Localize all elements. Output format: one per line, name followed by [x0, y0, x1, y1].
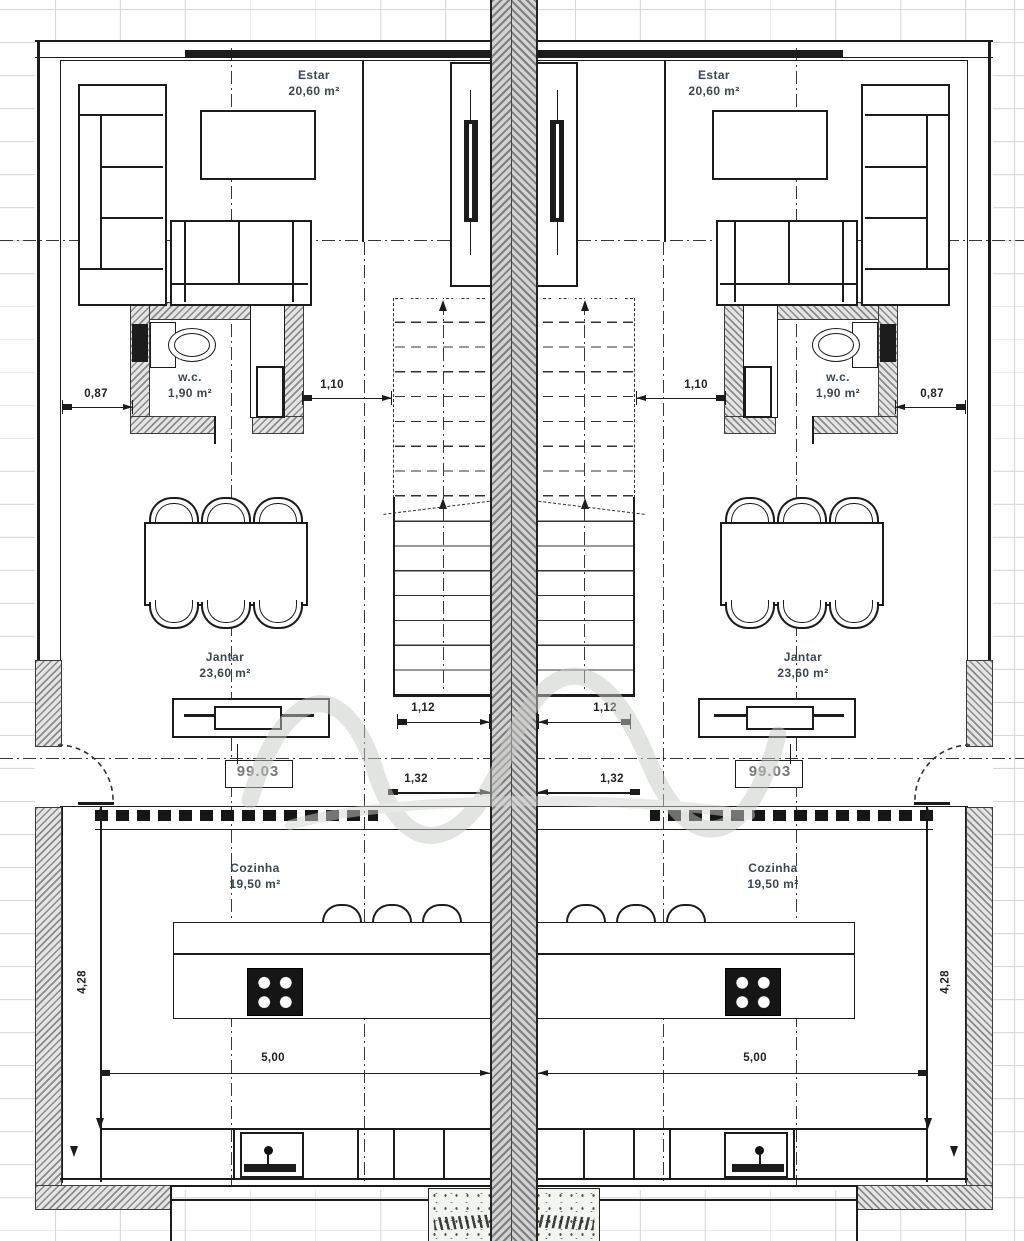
dim-wall-to-wc: 0,87 [896, 388, 968, 400]
faucet-stem [267, 1154, 269, 1165]
sofa-armrest-line [865, 114, 950, 116]
sofa-armrest-line [865, 268, 950, 270]
west-wall-inner-line [62, 807, 63, 1183]
sofa-back-line [927, 116, 929, 268]
dimension-arrow-icon [100, 1070, 110, 1076]
sofa-cushion-line [100, 166, 163, 168]
sofa-armrest-line [843, 220, 845, 302]
party-wall-hatch [511, 0, 538, 1241]
sink-edge [732, 1164, 784, 1172]
door-leaf [78, 802, 114, 805]
dimension-arrow-icon [918, 1070, 928, 1076]
dimension-line [388, 792, 490, 794]
counter-divider [443, 1128, 445, 1180]
dim-wall-to-wc: 0,87 [60, 388, 132, 400]
wc-wall-hatch [130, 416, 216, 434]
cozinha-room-label: Cozinha [195, 861, 315, 877]
dim-hall-width: 1,32 [380, 773, 452, 785]
south-wall-hatch [35, 1185, 172, 1210]
island-divider-line [538, 953, 855, 955]
counter-back-line [538, 1128, 928, 1130]
dimension-arrow-icon [480, 1070, 490, 1076]
stair-treads-lower [538, 497, 633, 695]
wc-area-label: 1,90 m² [798, 386, 878, 402]
dimension-tick [636, 391, 637, 405]
dimension-tick [132, 400, 133, 414]
wc-wall-hatch [812, 416, 898, 434]
sofa-two-seat [170, 220, 312, 306]
dimension-arrow-icon [302, 395, 312, 401]
level-marker-tick [237, 744, 238, 764]
sideboard-tv [746, 706, 814, 730]
kitchen-island [536, 922, 855, 1019]
sofa-armrest-line [78, 268, 163, 270]
dimension-arrow-icon [538, 719, 548, 725]
counter-divider [357, 1128, 359, 1180]
sofa-armrest-line [184, 220, 186, 302]
north-wall-glazing-band [538, 50, 843, 58]
south-wall-hatch [856, 1185, 993, 1210]
stair-up-arrow-icon [439, 300, 447, 311]
sofa-two-seat [716, 220, 858, 306]
sofa-cushion-line [865, 166, 928, 168]
sofa-armrest-line [78, 114, 163, 116]
dimension-tick [62, 400, 63, 414]
panel-handle-slit [556, 124, 559, 218]
sofa-back-line [100, 116, 102, 268]
dimension-tick [538, 714, 539, 729]
wc-basin [744, 366, 772, 418]
louver-screen [650, 810, 933, 821]
sofa-cushion-line [789, 220, 791, 284]
dimension-line [636, 398, 726, 399]
dim-kitchen-depth: 4,28 [77, 955, 89, 1010]
stair-rail-dashed [393, 298, 394, 498]
counter-divider [794, 1128, 796, 1180]
counter-front-line [60, 1178, 490, 1180]
sink-edge [244, 1164, 296, 1172]
paving-edge-line [170, 1185, 172, 1241]
wc-door-leaf [812, 416, 814, 444]
dimension-arrow-icon [388, 789, 398, 795]
dimension-arrow-icon [480, 789, 490, 795]
kitchen-boundary-line2 [95, 829, 490, 830]
dimension-arrow-icon [895, 404, 905, 410]
wc-wall-hatch [252, 416, 304, 434]
door-leaf [914, 802, 950, 805]
dimension-arrow-icon [397, 719, 407, 725]
dim-stair-width: 1,12 [569, 702, 641, 714]
dimension-line [100, 1073, 490, 1074]
wc-wall-hatch [724, 302, 744, 434]
jantar-area-label: 23,60 m² [743, 666, 863, 682]
dimension-line [538, 1073, 928, 1074]
sofa-armrest-line [292, 220, 294, 302]
sofa-armrest-line [735, 220, 737, 302]
dim-wc-to-stair: 1,10 [660, 379, 732, 391]
west-wall-outer-line [37, 40, 40, 745]
door-swing-arc [56, 743, 118, 807]
counter-front-line [538, 1178, 968, 1180]
sofa-cushion-line [100, 217, 163, 219]
wc-shaft [132, 324, 148, 362]
dimension-line [302, 398, 392, 399]
corner-mark-icon [70, 1146, 78, 1157]
sofa-cushion-line [865, 217, 928, 219]
west-wall-outer-line [988, 40, 991, 745]
south-edge-line [170, 1185, 514, 1187]
wc-basin [256, 366, 284, 418]
dimension-tick [725, 391, 726, 405]
dining-table [144, 522, 308, 606]
cozinha-room-label: Cozinha [713, 861, 833, 877]
dimension-tick [397, 714, 398, 729]
faucet-stem [759, 1154, 761, 1165]
louver-screen [95, 810, 378, 821]
north-wall-outer-line [35, 40, 514, 42]
sideboard-tv [214, 706, 282, 730]
estar-area-label: 20,60 m² [250, 84, 378, 100]
dimension-arrow-icon [538, 1070, 548, 1076]
dimension-arrow-icon [62, 404, 72, 410]
kitchen-boundary-line2 [538, 829, 933, 830]
dimension-arrow-icon [636, 395, 646, 401]
coffee-table [200, 110, 316, 180]
cozinha-area-label: 19,50 m² [195, 877, 315, 893]
stair-rail-dashed [634, 298, 635, 498]
stair-up-arrow-icon [581, 300, 589, 311]
door-swing-arc [910, 743, 972, 807]
dimension-line [538, 722, 631, 723]
cooktop [247, 968, 303, 1016]
dim-kitchen-width: 5,00 [237, 1052, 309, 1064]
wc-wall-hatch [130, 302, 150, 434]
estar-area-label: 20,60 m² [650, 84, 778, 100]
sofa-cushion-line [238, 220, 240, 284]
dimension-tick [965, 400, 966, 414]
dimension-arrow-icon [630, 789, 640, 795]
level-marker-value: 99.03 [737, 763, 803, 780]
wall-pier-hatch [35, 660, 62, 747]
dim-hall-width: 1,32 [576, 773, 648, 785]
coffee-table [712, 110, 828, 180]
cozinha-area-label: 19,50 m² [713, 877, 833, 893]
unit-right: Estar 20,60 m² w.c. 1,90 m² 0,87 [514, 0, 1024, 1241]
counter-divider [634, 1128, 636, 1180]
toilet-bowl-inner [818, 333, 854, 357]
dimension-arrow-icon [538, 789, 548, 795]
estar-room-label: Estar [650, 68, 778, 84]
dining-table [720, 522, 884, 606]
kitchen-boundary-line [60, 806, 490, 807]
dimension-tick [302, 391, 303, 405]
wc-door-leaf [214, 416, 216, 444]
toilet-bowl-inner [174, 333, 210, 357]
west-wall-hatch [966, 807, 993, 1187]
jantar-room-label: Jantar [743, 650, 863, 666]
north-wall-glazing-band [185, 50, 490, 58]
floor-plan-canvas: Estar 20,60 m² w.c. 1,90 m² 0,87 [0, 0, 1024, 1241]
interior-north-line [538, 60, 968, 61]
paving-edge-line [857, 1185, 859, 1241]
stair-direction-line [584, 302, 585, 692]
sofa-three-seat [861, 84, 950, 306]
level-marker-tick [790, 744, 791, 764]
dimension-arrow-icon [96, 808, 104, 819]
wall-pier-hatch [966, 660, 993, 747]
dimension-line [538, 792, 640, 794]
dim-kitchen-depth: 4,28 [940, 955, 952, 1010]
stair-direction-line [443, 302, 444, 692]
cooktop [725, 968, 781, 1016]
counter-divider [584, 1128, 586, 1180]
unit-left: Estar 20,60 m² w.c. 1,90 m² 0,87 [0, 0, 514, 1241]
counter-divider [393, 1128, 395, 1180]
west-wall-inner-line [965, 807, 966, 1183]
west-wall-hatch [35, 807, 62, 1187]
jantar-room-label: Jantar [165, 650, 285, 666]
west-wall-inner-line [60, 60, 61, 745]
dim-kitchen-width: 5,00 [719, 1052, 791, 1064]
dim-wc-to-stair: 1,10 [296, 379, 368, 391]
dimension-tick [895, 400, 896, 414]
corner-mark-icon [950, 1146, 958, 1157]
dim-stair-width: 1,12 [387, 702, 459, 714]
north-wall-outer-line [514, 40, 993, 42]
sofa-three-seat [78, 84, 167, 306]
wc-wall-hatch [878, 302, 898, 434]
dimension-tick [391, 391, 392, 405]
counter-divider [233, 1128, 235, 1180]
wc-room-label: w.c. [798, 370, 878, 386]
wc-area-label: 1,90 m² [150, 386, 230, 402]
wc-wall-hatch [724, 416, 776, 434]
dimension-line [397, 722, 490, 723]
wc-wall-hatch [284, 302, 304, 434]
dimension-tick [630, 714, 631, 729]
dimension-arrow-icon [924, 808, 932, 819]
west-wall-inner-line [967, 60, 968, 745]
stair-treads-dash-mask [538, 298, 633, 515]
wc-room-label: w.c. [150, 370, 230, 386]
south-edge-line [514, 1185, 858, 1187]
kitchen-island [173, 922, 492, 1019]
stair-rail-line [634, 497, 636, 697]
interior-north-line [60, 60, 490, 61]
kitchen-boundary-line [538, 806, 968, 807]
island-divider-line [173, 953, 490, 955]
jantar-area-label: 23,60 m² [165, 666, 285, 682]
level-marker-value: 99.03 [225, 763, 291, 780]
panel-handle-slit [469, 124, 472, 218]
wc-shaft [880, 324, 896, 362]
counter-back-line [100, 1128, 490, 1130]
counter-divider [670, 1128, 672, 1180]
estar-room-label: Estar [250, 68, 378, 84]
